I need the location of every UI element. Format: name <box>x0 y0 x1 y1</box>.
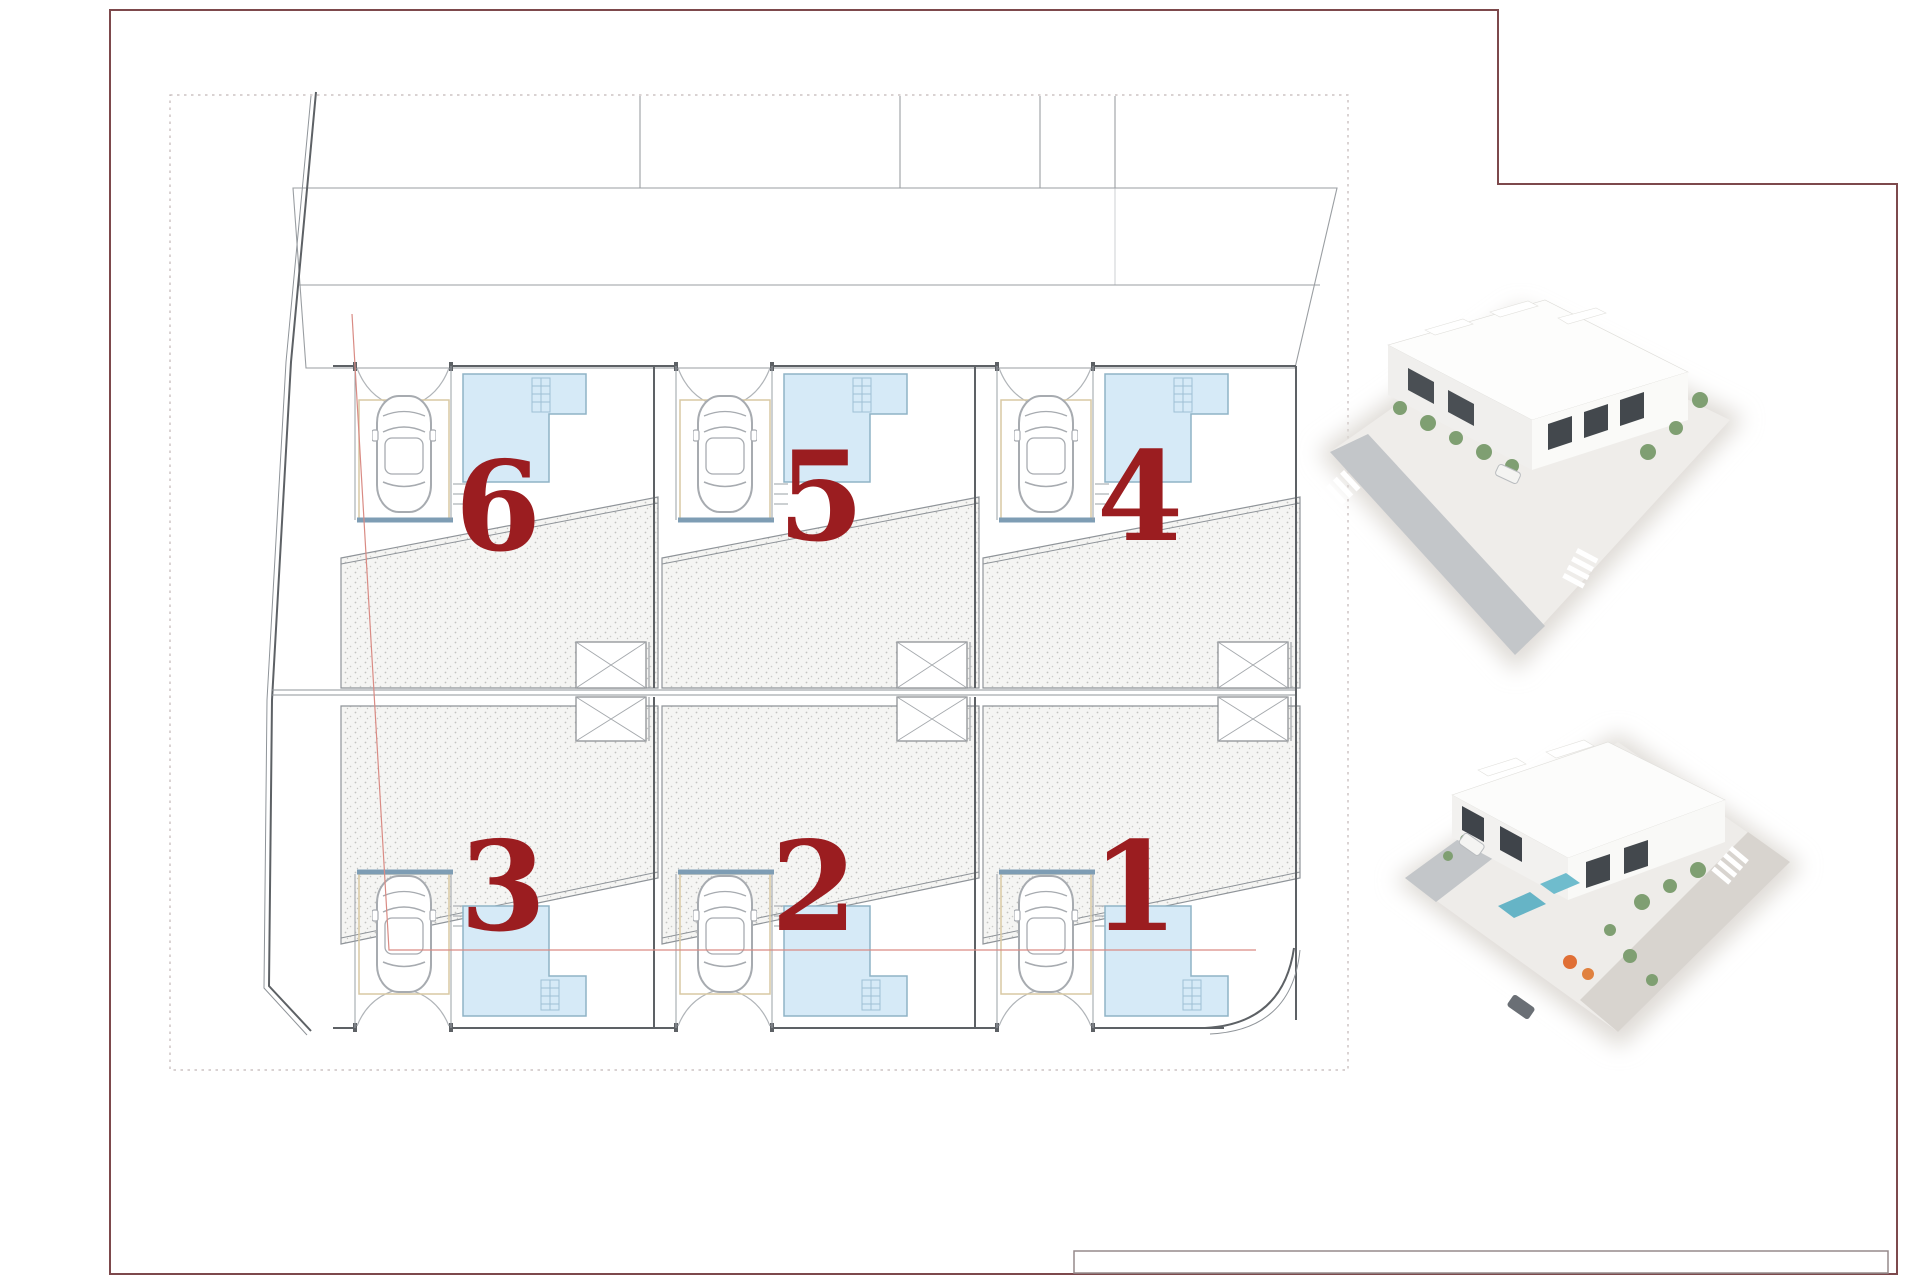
unit-plot-3: 3 <box>333 697 658 1032</box>
unit-number: 6 <box>455 435 541 580</box>
roof-hatch-band <box>293 188 1337 368</box>
unit-plot-2: 2 <box>654 697 979 1032</box>
car <box>1506 994 1535 1020</box>
unit-plot-4: 4 <box>975 362 1300 688</box>
orange-lounger <box>1582 968 1594 980</box>
title-strip <box>1074 1251 1888 1273</box>
unit-number: 5 <box>778 425 864 570</box>
unit-plot-6: 6 <box>333 362 658 688</box>
unit-number: 2 <box>771 815 857 960</box>
orange-lounger <box>1563 955 1577 969</box>
middle-party-wall <box>272 690 1296 695</box>
unit-number: 3 <box>460 815 546 960</box>
unit-plot-5: 5 <box>654 362 979 688</box>
aerial-render-pool-terrace-view <box>1395 733 1802 1048</box>
site-wall-left <box>264 92 316 1035</box>
unit-number: 1 <box>1092 815 1178 960</box>
aerial-render-street-view <box>1318 300 1744 672</box>
unit-number: 4 <box>1097 425 1183 570</box>
neighbour-plot-dividers <box>640 96 1115 285</box>
site-plan-sheet: 6 5 4 3 2 1 <box>0 0 1920 1280</box>
unit-plot-1: 1 <box>975 697 1300 1032</box>
site-plan-drawing: 6 5 4 3 2 1 <box>0 0 1920 1280</box>
